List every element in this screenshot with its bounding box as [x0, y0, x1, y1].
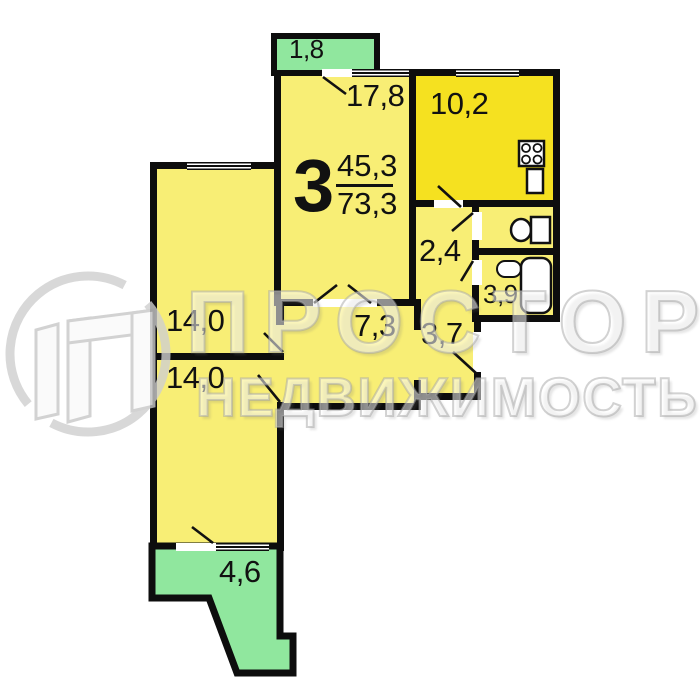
watermark-logo — [2, 266, 178, 442]
door-gap-balcony-top — [322, 69, 352, 77]
window-bedroom-lower — [216, 543, 269, 551]
label-balcony-top: 1,8 — [289, 36, 324, 62]
label-wc-hall: 2,4 — [419, 235, 461, 266]
living-area-label: 45,3 — [337, 150, 397, 181]
logo-building-icon — [36, 310, 154, 422]
label-balcony-bottom: 4,6 — [219, 556, 261, 587]
door-gap-kitchen — [434, 200, 463, 208]
apartment-type-label: 3 — [293, 149, 334, 223]
watermark-brand: ПРОСТОР — [186, 278, 700, 366]
watermark-subtitle: НЕДВИЖИМОСТЬ — [196, 370, 698, 425]
door-gap-wc — [472, 212, 482, 240]
label-living-room: 17,8 — [346, 80, 404, 111]
window-living-room — [352, 69, 409, 77]
door-gap-balcony-bottom — [176, 543, 216, 551]
window-bedroom-upper — [187, 162, 251, 170]
floor-plan-canvas: 17,8 10,2 2,4 3,9 3,7 7,3 14,0 14,0 1,8 … — [0, 0, 700, 700]
window-kitchen — [456, 69, 519, 77]
label-kitchen: 10,2 — [430, 88, 488, 119]
total-area-label: 73,3 — [337, 188, 397, 219]
room-wc — [472, 200, 560, 255]
